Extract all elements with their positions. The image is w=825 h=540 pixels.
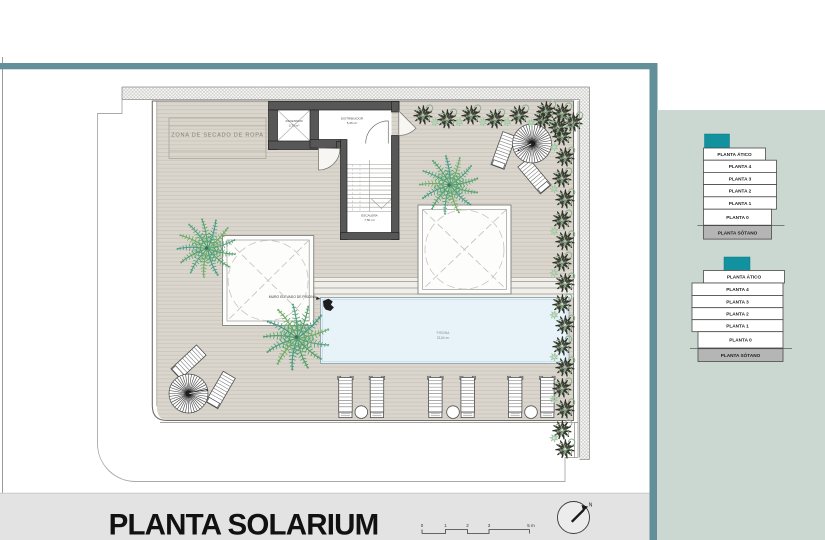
svg-text:7,50 m²: 7,50 m² — [364, 218, 375, 222]
svg-text:5 m: 5 m — [527, 523, 535, 528]
svg-text:ASCENSOR: ASCENSOR — [285, 119, 303, 123]
svg-text:MURO ELEVADO DE PISCINA: MURO ELEVADO DE PISCINA — [269, 295, 317, 299]
svg-text:PLANTA 1: PLANTA 1 — [726, 324, 749, 329]
svg-text:PLANTA 3: PLANTA 3 — [726, 299, 749, 304]
svg-text:ESCALERA: ESCALERA — [361, 214, 378, 218]
svg-text:PLANTA 3: PLANTA 3 — [729, 176, 752, 181]
svg-text:PLANTA SÓTANO: PLANTA SÓTANO — [721, 351, 761, 358]
svg-text:PLANTA 2: PLANTA 2 — [726, 312, 749, 317]
svg-text:PLANTA 2: PLANTA 2 — [729, 189, 752, 194]
svg-text:5,26 m²: 5,26 m² — [347, 121, 358, 125]
svg-text:PISCINA: PISCINA — [437, 331, 451, 335]
svg-text:PLANTA 0: PLANTA 0 — [726, 215, 749, 220]
svg-text:PLANTA SOLARIUM: PLANTA SOLARIUM — [109, 508, 379, 540]
svg-text:PLANTA 0: PLANTA 0 — [729, 338, 752, 343]
svg-text:23,84 m²: 23,84 m² — [437, 336, 450, 340]
svg-text:PLANTA SÓTANO: PLANTA SÓTANO — [718, 228, 758, 235]
svg-text:PLANTA 1: PLANTA 1 — [729, 201, 752, 206]
svg-text:3,73 m²: 3,73 m² — [289, 124, 300, 128]
svg-text:PLANTA 4: PLANTA 4 — [729, 164, 752, 169]
svg-text:ZONA DE SECADO DE ROPA: ZONA DE SECADO DE ROPA — [171, 132, 264, 138]
svg-text:PLANTA ÁTICO: PLANTA ÁTICO — [727, 274, 762, 280]
svg-text:DISTRIBUIDOR: DISTRIBUIDOR — [341, 117, 364, 121]
svg-text:PLANTA 4: PLANTA 4 — [726, 287, 749, 292]
svg-text:N: N — [589, 503, 593, 509]
svg-text:PLANTA ÁTICO: PLANTA ÁTICO — [717, 151, 752, 157]
